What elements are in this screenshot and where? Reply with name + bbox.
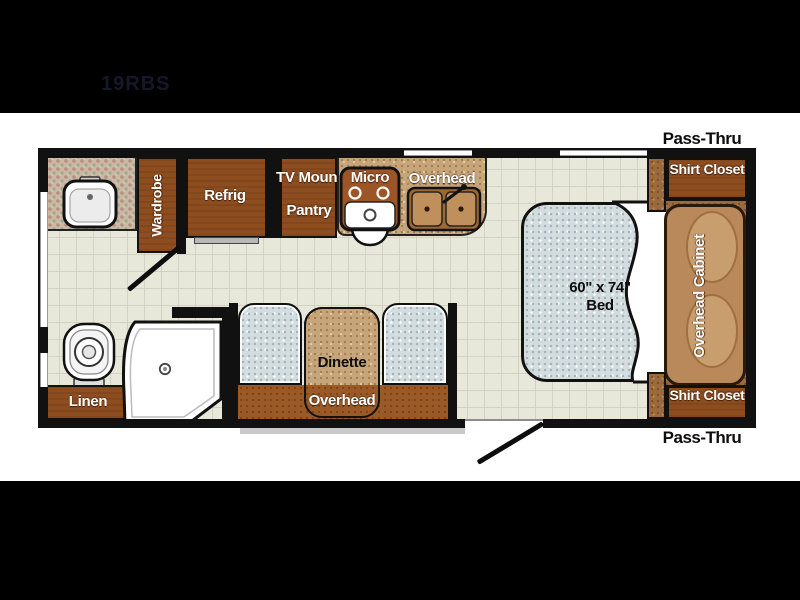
bed-label: Bed	[550, 298, 650, 314]
refrigerator-front	[194, 237, 259, 244]
linen-label: Linen	[48, 394, 128, 410]
micro-label: Micro	[340, 170, 400, 186]
floorplan-image: 19RBS Wardrobe Refrig TV Mount Pantry	[0, 0, 800, 600]
bedroom-window	[560, 150, 647, 156]
bathroom-sink-fixture	[62, 176, 118, 230]
pass-thru-wall-front	[647, 157, 666, 212]
bath-wall-stub	[177, 157, 186, 254]
dinette-label: Dinette	[292, 355, 392, 371]
dinette-post-right	[448, 303, 457, 420]
wardrobe-label: Wardrobe	[150, 161, 165, 251]
wall-top	[38, 148, 756, 158]
toilet-fixture	[60, 320, 122, 392]
bath-window-long	[40, 192, 48, 327]
kitchen-overhead-label: Overhead	[405, 171, 479, 187]
dinette-bench-left	[238, 303, 302, 385]
exterior-step-strip	[240, 428, 465, 434]
wall-right	[746, 148, 756, 428]
pass-thru-front-label: Pass-Thru	[652, 130, 752, 148]
shirt-closet-front-label: Shirt Closet	[668, 162, 746, 177]
refrig-label: Refrig	[186, 188, 264, 204]
shower-fixture	[118, 316, 226, 428]
overhead-cabinet-label: Overhead Cabinet	[692, 230, 708, 362]
kitchen-sink-fixture	[406, 180, 482, 234]
shirt-closet-rear-label: Shirt Closet	[668, 388, 746, 403]
model-title: 19RBS	[101, 73, 197, 97]
plan-canvas: Wardrobe Refrig TV Mount Pantry Micro	[0, 113, 800, 481]
pass-thru-wall-rear	[647, 372, 666, 419]
dinette-overhead-label: Overhead	[292, 393, 392, 409]
bath-window-short	[40, 353, 48, 387]
bed-size-label: 60" x 74"	[550, 280, 650, 296]
pass-thru-rear-label: Pass-Thru	[652, 429, 752, 447]
kitchen-window	[404, 150, 472, 156]
dinette-bench-right	[382, 303, 448, 385]
wall-bottom	[38, 419, 756, 428]
